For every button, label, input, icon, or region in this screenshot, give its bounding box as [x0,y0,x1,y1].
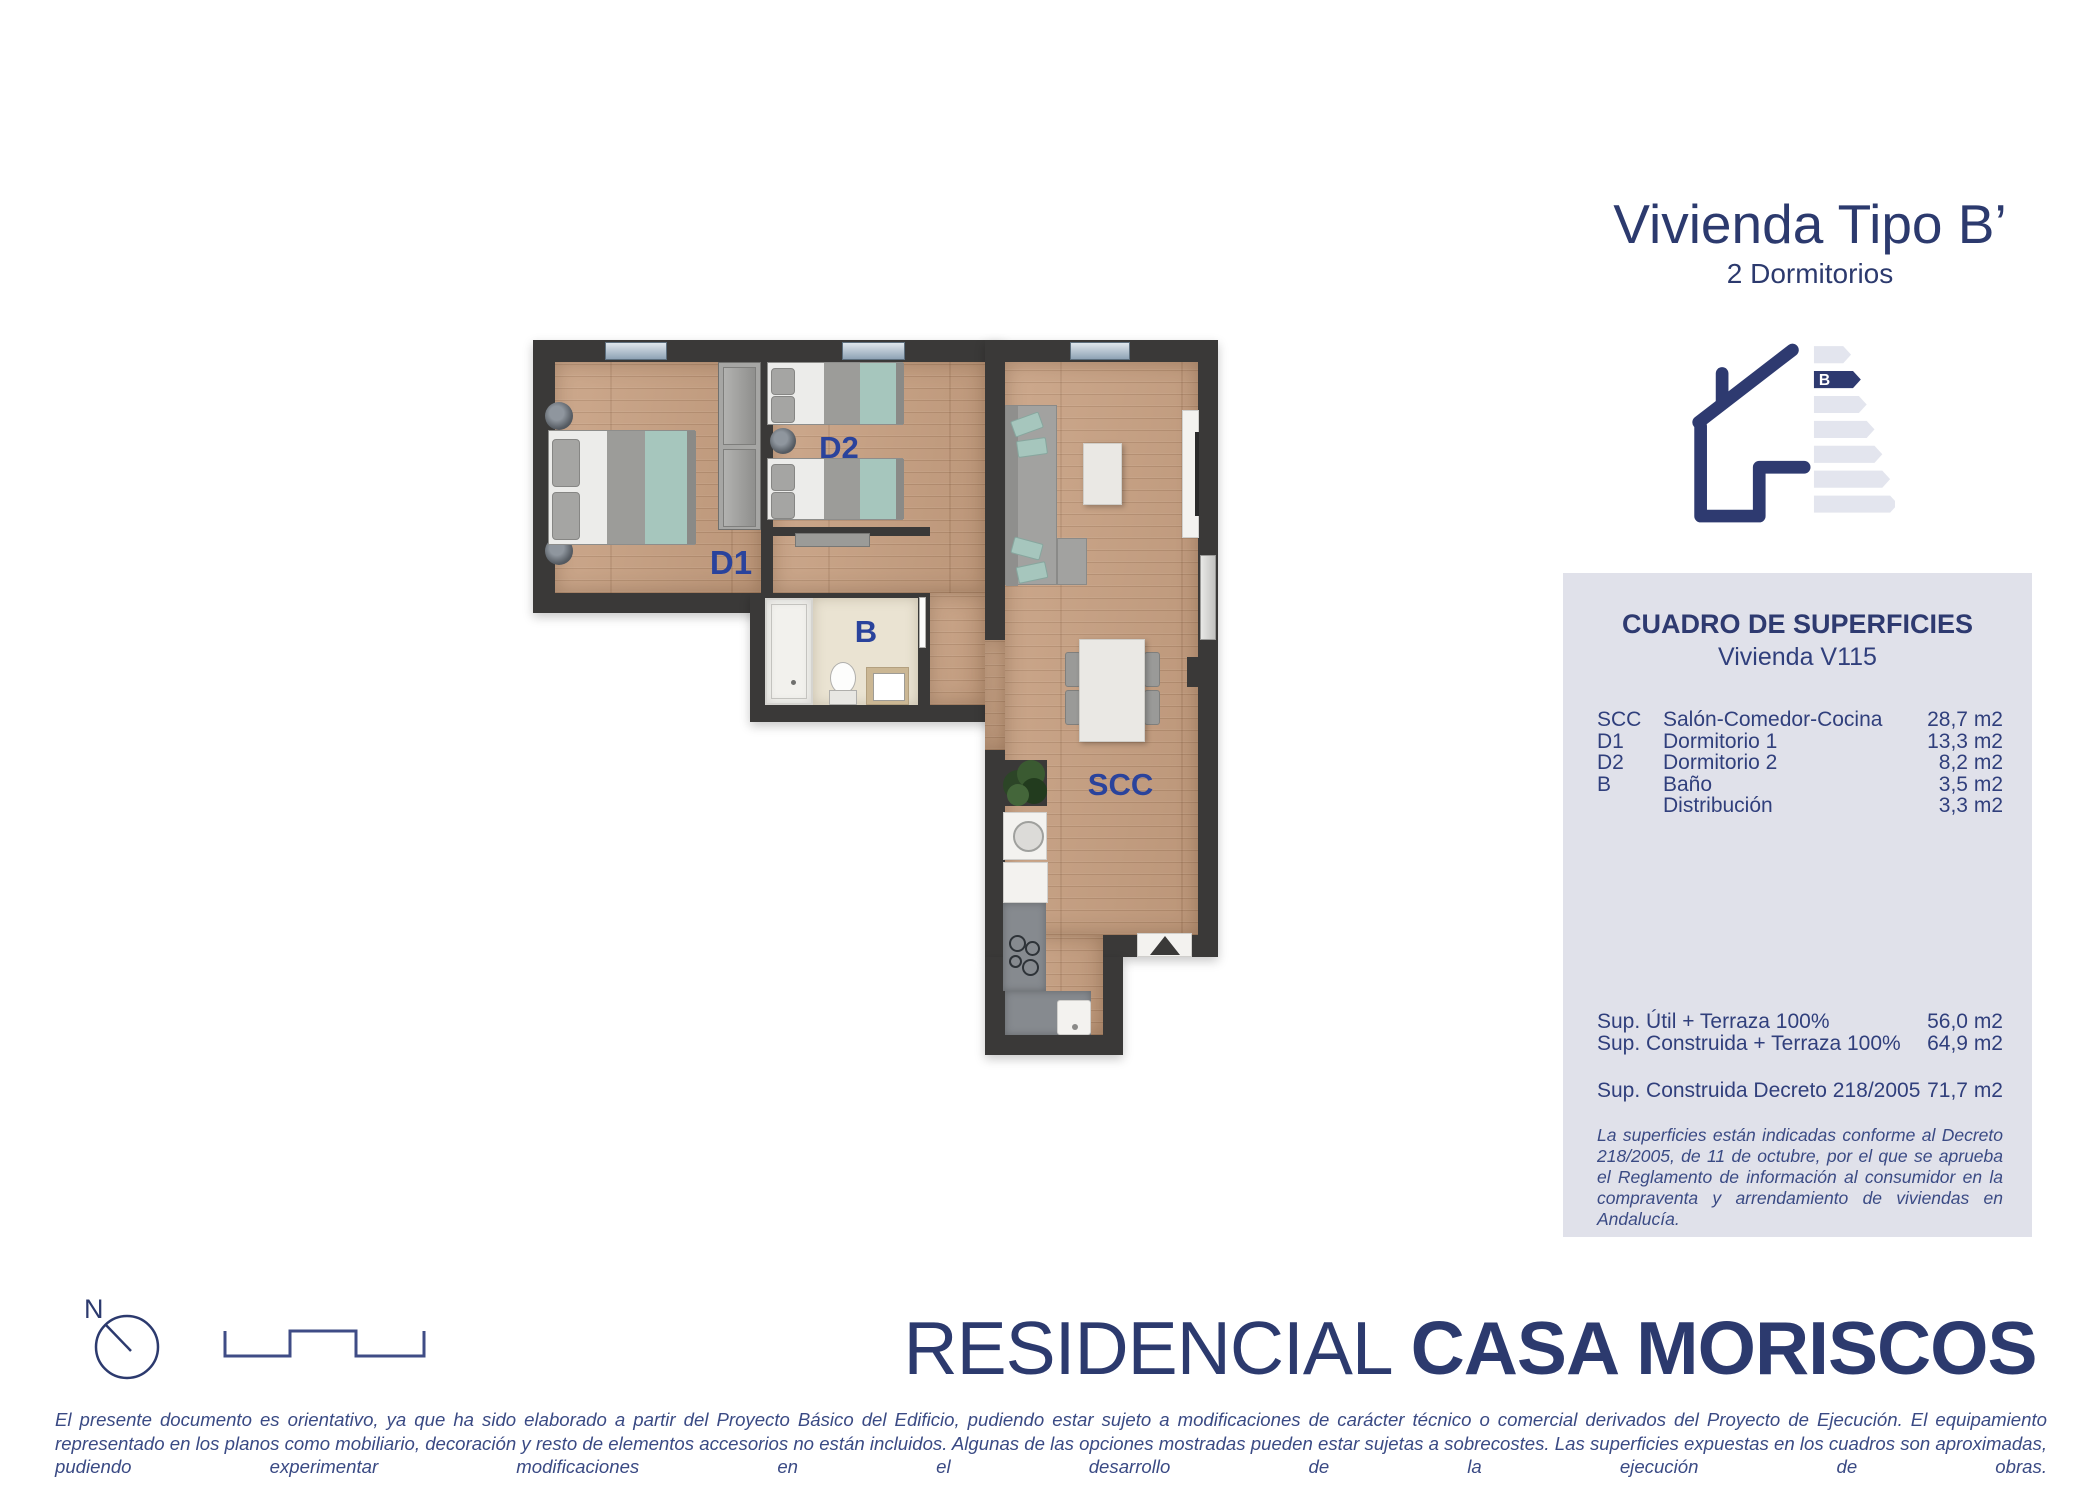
kitchen-sink-unit [1003,812,1047,860]
row-name: Dormitorio 2 [1663,752,1893,774]
row-abbr: SCC [1597,709,1659,731]
energy-rating-letter: B [1819,372,1830,389]
oven-knob-icon [1072,1024,1078,1030]
total-value: 64,9 m2 [1927,1033,2003,1055]
shower-drain [791,680,796,685]
window-scc-right [1200,555,1216,640]
pillow [771,396,795,423]
row-name: Dormitorio 1 [1663,731,1893,753]
compass-north-label: N [84,1294,104,1324]
footer-disclaimer: El presente documento es orientativo, ya… [55,1408,2047,1479]
row-value: 28,7 m2 [1927,709,2003,731]
table-row: B Baño 3,5 m2 [1597,774,2003,796]
brand-title: RESIDENCIALCASA MORISCOS [810,1305,2100,1391]
dining-table [1079,639,1145,742]
energy-rating-icon: B [1685,338,1895,533]
cooktop-burner-icon [1009,935,1026,952]
row-value: 13,3 m2 [1927,731,2003,753]
row-abbr: D2 [1597,752,1659,774]
table-row: D1 Dormitorio 1 13,3 m2 [1597,731,2003,753]
window-d2 [842,342,905,360]
bed-blanket [824,459,860,519]
row-name: Distribución [1663,795,1893,817]
room-label-d2: D2 [809,432,869,463]
north-compass-icon: N [70,1288,180,1398]
floor-plan: D1 D2 B SCC [533,340,1223,1057]
coffee-table [1083,443,1122,505]
bed-cover [860,363,896,424]
pillow [771,492,795,519]
table-row: SCC Salón-Comedor-Cocina 28,7 m2 [1597,709,2003,731]
bed-cover [860,459,896,519]
table-row: D2 Dormitorio 2 8,2 m2 [1597,752,2003,774]
nightstand [770,428,796,454]
brand-prefix: RESIDENCIAL [903,1306,1392,1390]
sink-basin [873,673,905,701]
bed-blanket [824,363,860,424]
page-subtitle: 2 Dormitorios [1550,258,2070,290]
shower-tray [765,598,813,705]
page-title: Vivienda Tipo B’ [1550,192,2070,256]
passage-floor [985,640,1005,750]
row-value: 3,3 m2 [1939,795,2003,817]
shower-frame [771,604,807,699]
row-value: 8,2 m2 [1939,752,2003,774]
console-table [795,533,870,547]
room-label-b: B [849,616,883,647]
surfaces-table: SCC Salón-Comedor-Cocina 28,7 m2 D1 Dorm… [1597,709,2003,817]
house-roof-icon [1699,350,1793,422]
pillow [552,439,580,487]
building-profile-icon [222,1328,432,1362]
kitchen-sink-basin [1013,821,1044,852]
bed-footboard [896,459,904,519]
pillow [771,464,795,491]
total-row: Sup. Construida + Terraza 100% 64,9 m2 [1597,1033,2003,1055]
row-value: 3,5 m2 [1939,774,2003,796]
tv-icon [1195,432,1199,516]
pillow [771,368,795,395]
oven [1057,1000,1091,1035]
total-label: Sup. Útil + Terraza 100% [1597,1011,1830,1033]
window-scc [1070,342,1130,360]
room-label-d1: D1 [701,546,761,579]
sink-vanity [866,667,909,705]
brand-name: CASA MORISCOS [1411,1306,2037,1390]
wardrobe [718,362,761,530]
cooktop-burner-icon [1009,955,1022,968]
total-value: 56,0 m2 [1927,1011,2003,1033]
single-bed [767,458,903,520]
table-row: Distribución 3,3 m2 [1597,795,2003,817]
bath-door-leaf [919,597,926,648]
house-body-icon [1701,426,1805,516]
single-bed [767,362,903,425]
double-bed [548,430,695,545]
toilet-tank [829,690,857,705]
wardrobe-module [723,367,756,445]
total-row: Sup. Útil + Terraza 100% 56,0 m2 [1597,1011,2003,1033]
row-abbr: B [1597,774,1659,796]
totals-block: Sup. Útil + Terraza 100% 56,0 m2 Sup. Co… [1597,1011,2003,1055]
pillow [552,492,580,540]
panel-subtitle: Vivienda V115 [1563,643,2032,672]
panel-legal-note: La superficies están indicadas conforme … [1597,1125,2003,1230]
fridge [1003,862,1048,903]
wardrobe-module [723,449,756,527]
title-block: Vivienda Tipo B’ 2 Dormitorios [1550,192,2070,290]
dining-chair [1144,690,1160,725]
row-abbr: D1 [1597,731,1659,753]
bed-cover [645,431,687,544]
bed-footboard [896,363,904,424]
wall-bath-right [918,648,930,705]
window-d1 [605,342,667,360]
cooktop-burner-icon [1022,959,1039,976]
decree-row: Sup. Construida Decreto 218/2005 71,7 m2 [1597,1079,2003,1101]
terrace-door-swing-icon [1150,936,1180,955]
total-label: Sup. Construida + Terraza 100% [1597,1033,1901,1055]
wall-pillar [1187,657,1198,687]
brochure-page: Vivienda Tipo B’ 2 Dormitorios B CUADRO … [0,0,2100,1485]
hall-floor [930,593,985,705]
cooktop-burner-icon [1025,941,1040,956]
row-name: Salón-Comedor-Cocina [1663,709,1893,731]
room-label-scc: SCC [1078,769,1163,800]
kitchen-counter [1003,903,1046,991]
energy-bars-icon [1814,346,1895,513]
dining-chair [1144,652,1160,687]
nightstand [545,402,573,430]
decree-value: 71,7 m2 [1927,1079,2003,1103]
sofa-chaise [1057,538,1087,585]
panel-title: CUADRO DE SUPERFICIES [1563,609,2032,640]
plant-leaf [1007,784,1029,806]
row-name: Baño [1663,774,1893,796]
bed-footboard [687,431,696,544]
plant [1003,760,1047,806]
decree-label: Sup. Construida Decreto 218/2005 [1597,1079,1920,1103]
surfaces-panel: CUADRO DE SUPERFICIES Vivienda V115 SCC … [1563,573,2032,1237]
